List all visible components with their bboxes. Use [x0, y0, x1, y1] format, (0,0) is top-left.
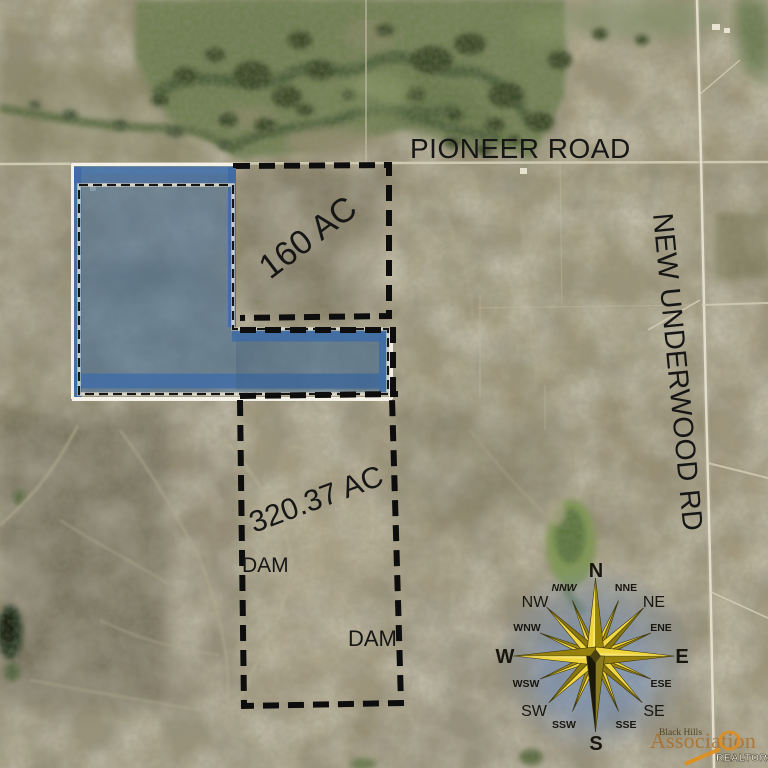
svg-text:SSW: SSW — [552, 719, 576, 731]
svg-text:PIONEER ROAD: PIONEER ROAD — [410, 133, 631, 164]
svg-text:S: S — [589, 733, 602, 755]
svg-text:ESE: ESE — [650, 678, 671, 690]
svg-text:SSE: SSE — [615, 719, 636, 731]
svg-text:N: N — [589, 560, 603, 582]
svg-text:E: E — [675, 646, 688, 668]
svg-text:SE: SE — [643, 703, 664, 720]
svg-text:NNW: NNW — [551, 582, 577, 594]
svg-text:SW: SW — [521, 703, 548, 720]
svg-text:NNE: NNE — [615, 582, 637, 594]
svg-text:DAM: DAM — [242, 554, 289, 577]
svg-text:DAM: DAM — [348, 626, 397, 651]
svg-text:NE: NE — [643, 594, 665, 611]
svg-text:NW: NW — [522, 594, 550, 611]
svg-text:WNW: WNW — [513, 622, 540, 634]
svg-text:W: W — [496, 646, 515, 668]
svg-text:REALTORS: REALTORS — [716, 752, 768, 764]
svg-text:WSW: WSW — [513, 678, 540, 690]
svg-text:ENE: ENE — [650, 622, 672, 634]
